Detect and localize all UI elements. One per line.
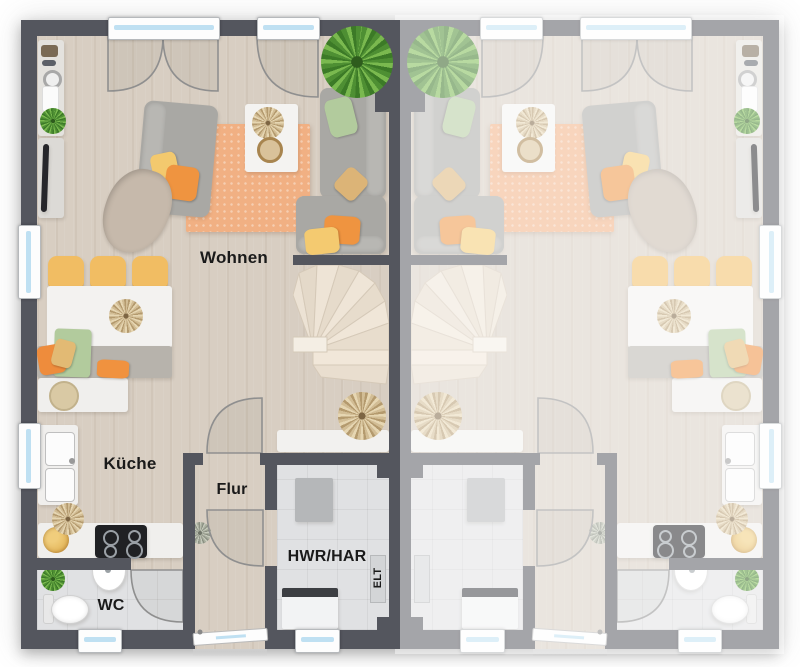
wc-door-swing: [617, 570, 669, 622]
utility-tile-floor: [411, 465, 523, 630]
wc-door-swing: [131, 570, 183, 622]
pillow-yellow: [619, 151, 651, 187]
cushion-tan: [430, 165, 468, 203]
utility-pillar-top: [377, 465, 389, 478]
utility-window: [460, 629, 505, 653]
utility-top-wall: [411, 453, 540, 465]
utility-pillar-bottom: [411, 617, 423, 630]
bench-pillow-orange2: [671, 359, 704, 379]
dining-window: [18, 225, 41, 299]
fruit-plate: [721, 381, 751, 411]
kitchen-window: [18, 423, 41, 489]
window-glass: [84, 637, 116, 642]
sofa-backrest: [633, 102, 662, 211]
decor-book: [744, 60, 758, 66]
party-wall: [400, 20, 411, 649]
hall-doorpost: [597, 453, 617, 465]
washer-panel: [462, 588, 518, 597]
utility-window: [295, 629, 340, 653]
room-label-flur: Flur: [216, 481, 247, 499]
window-glass: [586, 25, 686, 30]
window-glass: [769, 429, 774, 483]
living-rug: [490, 124, 614, 232]
window-glass: [114, 25, 214, 30]
wc-top-wall: [37, 558, 131, 570]
terrace-window: [580, 17, 692, 40]
utility-top-wall: [260, 453, 389, 465]
utility-left-wall-lower: [523, 566, 535, 630]
coffee-table-plant: [516, 107, 548, 139]
door-swing-arcs: [400, 20, 779, 649]
wc-window: [78, 629, 122, 653]
hall-kitchen-wall: [605, 453, 617, 630]
window-glass: [486, 25, 537, 30]
utility-pillar-top: [411, 465, 423, 478]
stair-wall: [293, 255, 389, 265]
washing-machine: [462, 588, 518, 629]
entrance-porch: [193, 649, 267, 657]
window-glass: [466, 637, 499, 642]
room-label-hwr: HWR/HAR: [288, 548, 367, 566]
hall-plant: [589, 522, 611, 544]
throw-blanket: [619, 160, 706, 262]
sideboard: [736, 40, 762, 136]
corner-sofa-short: [414, 196, 504, 254]
bench-pillow-orange: [733, 343, 765, 376]
dining-window: [759, 225, 782, 299]
utility-left-wall-upper: [523, 465, 535, 510]
window-glass: [26, 231, 31, 293]
outer-wall-left: [21, 20, 37, 649]
door-glazing: [554, 634, 584, 639]
outer-wall-left: [763, 20, 779, 649]
burner: [683, 545, 696, 558]
kitchen-sideboard: [672, 378, 762, 412]
window-glass: [301, 637, 334, 642]
wc-plant: [735, 567, 759, 591]
dining-table: [628, 286, 753, 348]
cushion-green: [441, 95, 477, 139]
bench-pillow-tan: [723, 338, 750, 370]
dining-chair: [674, 256, 710, 291]
stair-wall: [411, 255, 507, 265]
utility-door-swing: [537, 510, 593, 566]
terrace-door-swing: [637, 36, 692, 91]
sink-basin: [725, 432, 755, 466]
wc-top-wall: [669, 558, 763, 570]
outer-wall-top: [400, 20, 779, 36]
entrance-door-leaf: [532, 628, 608, 646]
garden-window: [480, 17, 543, 40]
window-glass: [769, 231, 774, 293]
coffee-table: [502, 104, 555, 172]
understairs-console: [411, 430, 523, 452]
utility-left-wall-lower: [265, 566, 277, 630]
room-label-wc: WC: [97, 597, 124, 615]
entrance-threshold: [535, 630, 605, 649]
terrace-door-swing: [163, 36, 218, 91]
palm-plant: [407, 26, 479, 98]
tv-lowboard: [736, 138, 762, 218]
kitchen-sink-counter: [722, 425, 762, 505]
window-glass: [684, 637, 716, 642]
terrace-window: [108, 17, 220, 40]
wash-basin: [674, 566, 708, 591]
window-glass: [263, 25, 314, 30]
burner: [657, 542, 674, 559]
kitchen-window: [759, 423, 782, 489]
coffee-table-tray: [517, 137, 543, 163]
bench-throw-green: [708, 328, 747, 377]
table-centerpiece: [657, 299, 691, 333]
door-handle: [597, 629, 602, 634]
wc-tile-floor: [617, 570, 763, 630]
room-label-wohnen: Wohnen: [200, 248, 268, 268]
toilet-bowl: [711, 595, 749, 624]
burner: [681, 530, 697, 546]
sink-basin: [725, 468, 755, 502]
garden-window: [257, 17, 320, 40]
floor-plan: Wohnen Küche Flur HWR/HAR ELT WC: [0, 0, 800, 667]
unit-right: Wohnen Küche Flur HWR/HAR ELT WC: [400, 20, 779, 649]
building: Wohnen Küche Flur HWR/HAR ELT WC: [21, 20, 779, 649]
door-glazing: [216, 634, 246, 639]
kitchen-counter: [617, 523, 762, 558]
corner-sofa-backrest: [416, 90, 434, 196]
kitchen-flowers: [716, 503, 748, 535]
room-label-elt: ELT: [372, 568, 384, 589]
party-wall: [389, 20, 400, 649]
sofa-main: [581, 100, 664, 218]
unit-left: Wohnen Küche Flur HWR/HAR ELT WC: [21, 20, 400, 649]
pillow-orange: [600, 164, 637, 202]
utility-door-swing: [207, 510, 263, 566]
corner-sofa-backrest2: [416, 236, 502, 252]
room-label-kueche: Küche: [104, 454, 157, 474]
decor-books: [742, 45, 759, 57]
terrace-door-swing: [108, 36, 163, 91]
door-handle: [197, 629, 202, 634]
window-glass: [26, 429, 31, 483]
basin-faucet: [689, 567, 695, 573]
faucet: [725, 458, 731, 464]
cushion-orange: [439, 215, 477, 245]
dried-plant-large: [414, 392, 462, 440]
dining-bench: [628, 346, 763, 378]
decor-plate: [738, 70, 757, 89]
hall-kitchen-wall: [183, 453, 195, 630]
dining-chair: [716, 256, 752, 291]
corner-wall-block: [411, 36, 425, 112]
palm-plant: [321, 26, 393, 98]
cushion-yellow: [460, 226, 497, 255]
terrace-door-swing: [582, 36, 637, 91]
wc-window: [678, 629, 722, 653]
decor-card: [741, 86, 758, 112]
toilet-tank: [746, 594, 757, 624]
corner-sofa-long: [414, 88, 480, 198]
dried-plant-large: [338, 392, 386, 440]
fruit-bowl: [731, 527, 757, 553]
heat-pump-unit: [467, 478, 505, 522]
tv-screen: [751, 144, 759, 212]
outer-wall-bottom: [400, 630, 779, 649]
utility-pillar-bottom: [377, 617, 389, 630]
staircase: [411, 265, 507, 385]
burner: [659, 530, 672, 543]
wood-floor: [411, 36, 763, 630]
electrical-panel: [414, 555, 430, 603]
sideboard-plant: [734, 108, 760, 134]
hall-door-swing: [207, 398, 262, 453]
hall-door-swing: [538, 398, 593, 453]
garden-door-swing: [257, 36, 318, 97]
hall-doorpost: [183, 453, 203, 465]
garden-door-swing: [482, 36, 543, 97]
utility-left-wall-upper: [265, 465, 277, 510]
dining-chair: [632, 256, 668, 291]
entrance-porch: [533, 649, 607, 657]
cooktop: [653, 525, 705, 558]
